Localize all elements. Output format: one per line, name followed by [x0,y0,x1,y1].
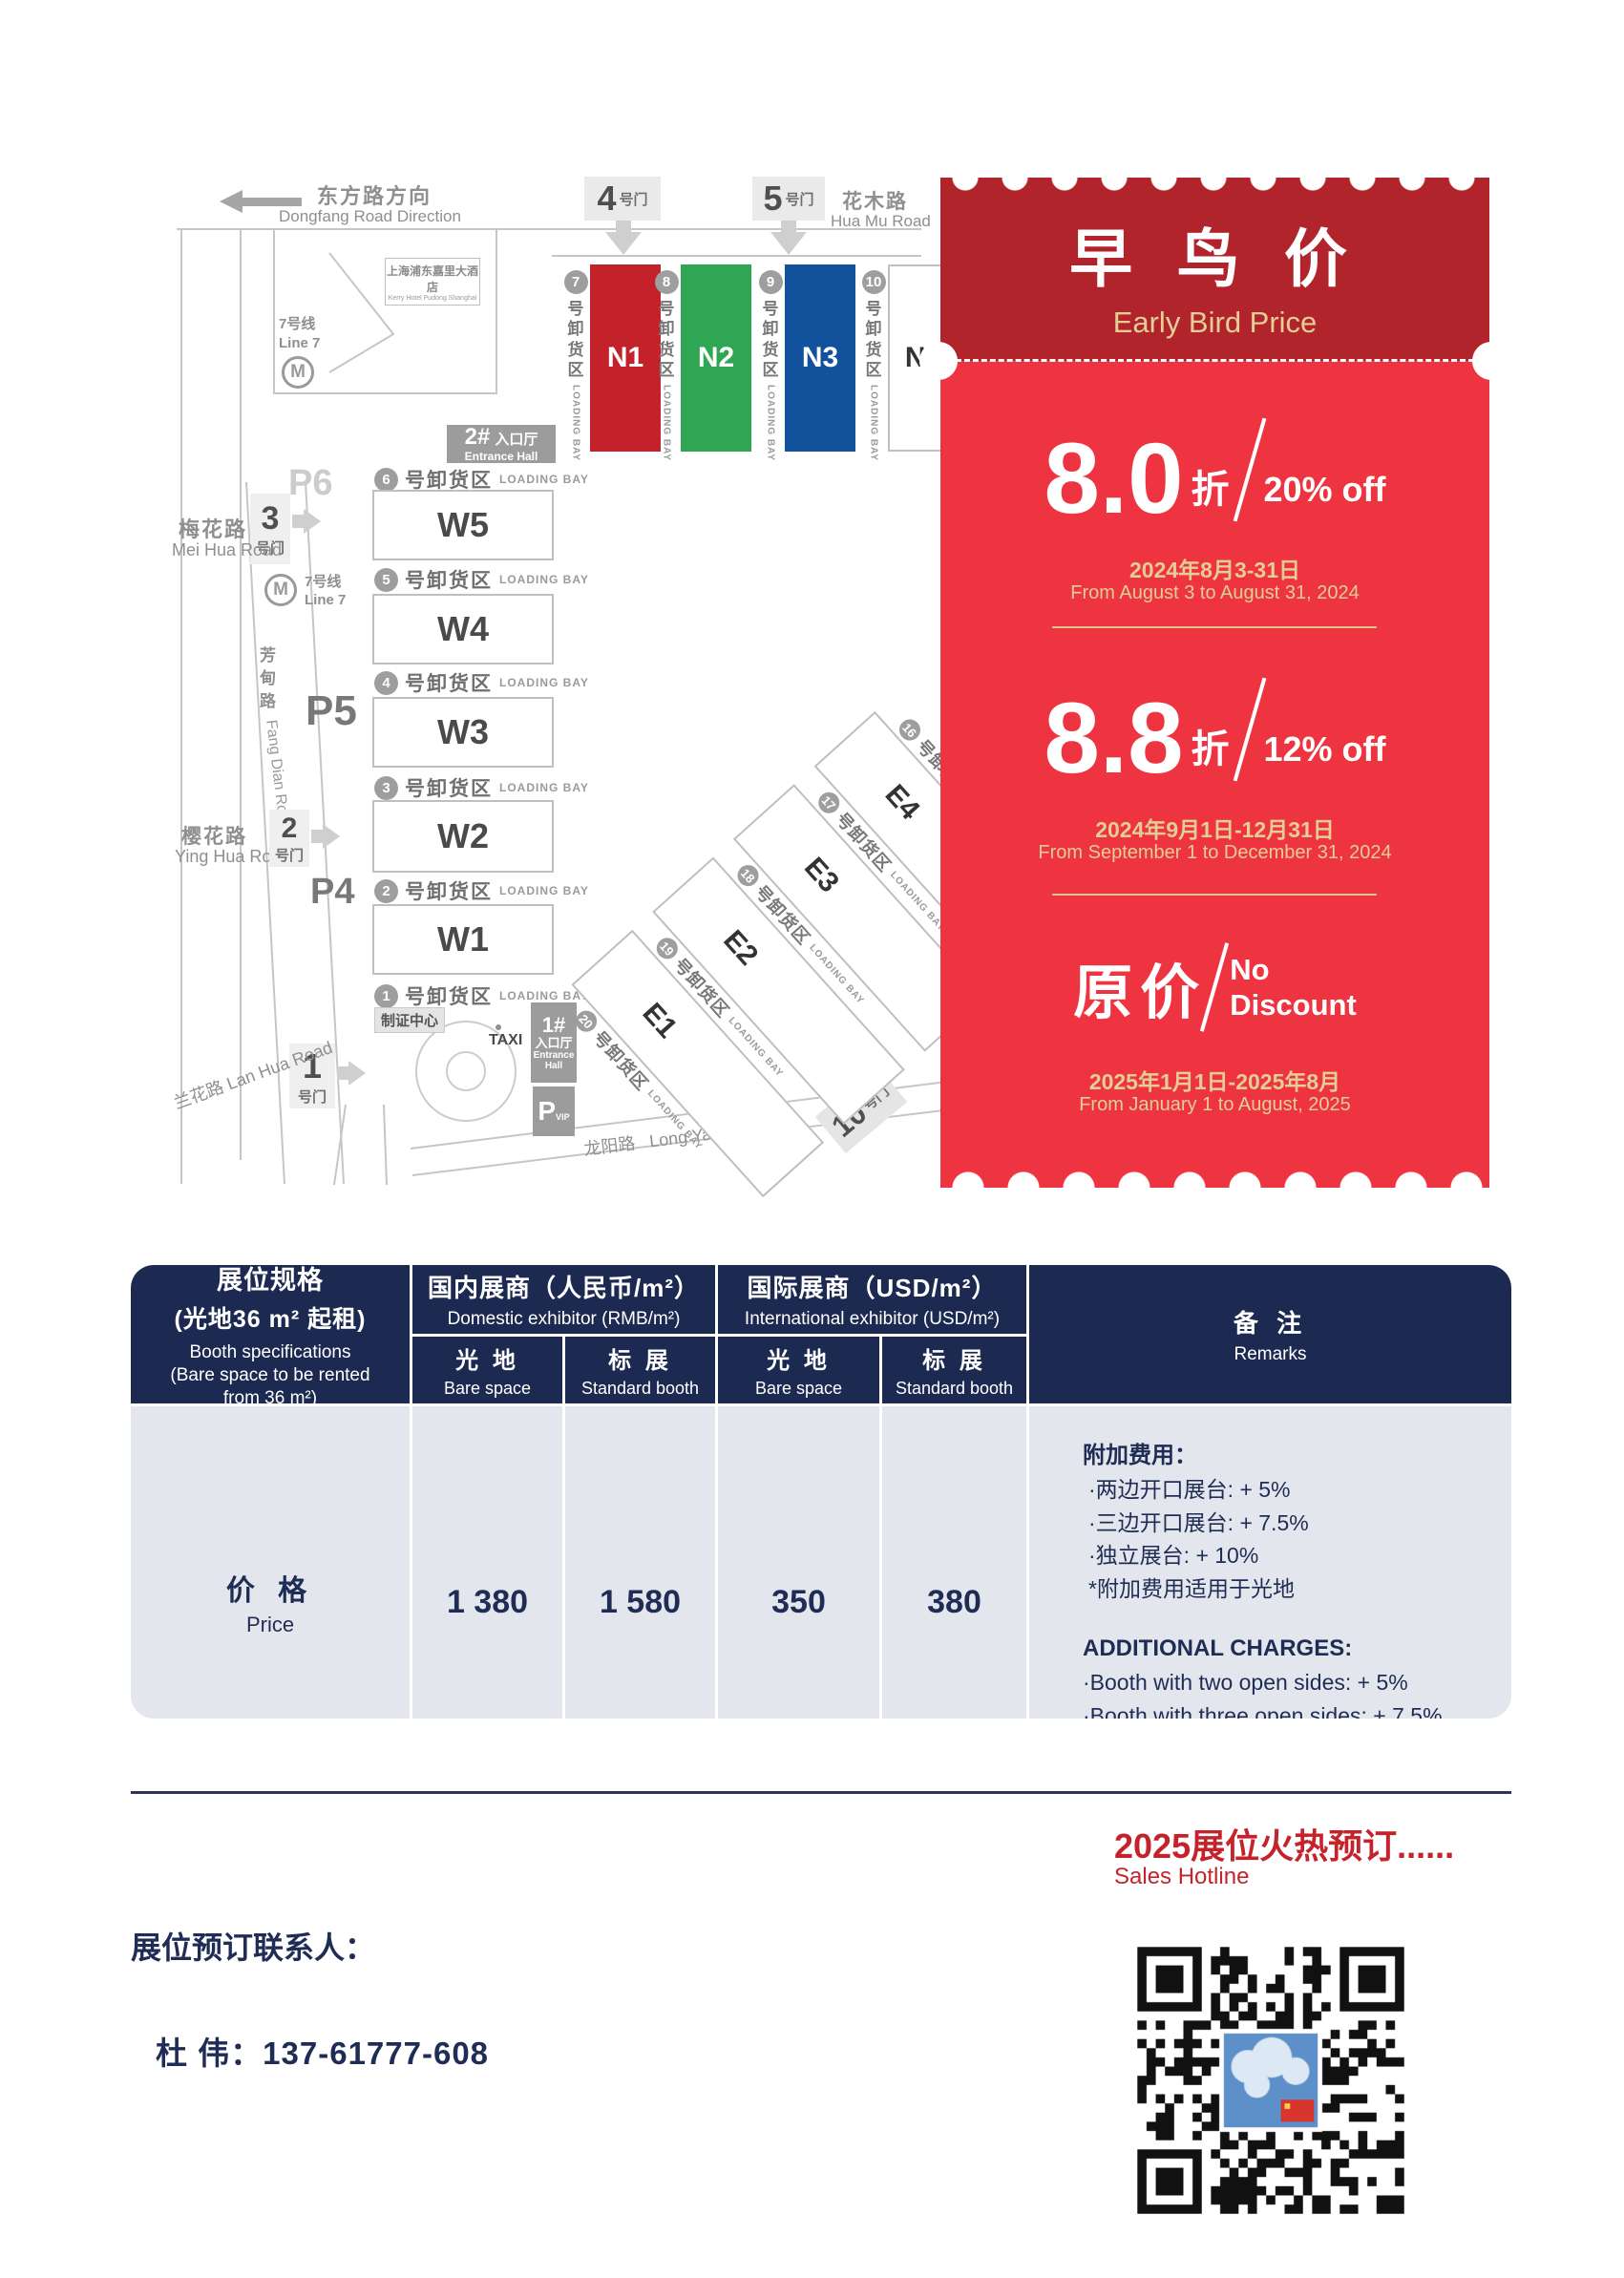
price-dom-bare-cell: 1 380 [412,1406,562,1719]
metro-line7-en-a: Line 7 [279,334,320,353]
n-bay-9-number: 9 [759,270,783,294]
w-bay-5-number: 5 [374,568,398,592]
tier2-percent: 12% off [1263,729,1385,770]
notes-en-title: ADDITIONAL CHARGES: [1083,1632,1352,1666]
metro-line7-zh-b: 7号线 [305,574,346,592]
huamu-road-en: Hua Mu Road [831,212,931,231]
badge-center-label: 制证中心 [374,1007,445,1033]
n-bay-7-number: 7 [564,270,588,294]
hall-w2-label: W2 [437,816,489,856]
n-bay-8-zh: 号卸货区 [659,299,675,380]
parking-p4: P4 [310,872,354,913]
gate-2-badge: 2 号门 [269,810,309,867]
hall-w1-label: W1 [437,919,489,960]
spec-zh-1: 展位规格 [217,1265,324,1297]
notes-zh-2: ·三边开口展台: + 7.5% [1083,1507,1309,1540]
contact-name: 杜 伟： [156,2035,263,2071]
contact-phone: 137-61777-608 [263,2035,489,2071]
tier1-date-zh: 2024年8月3-31日 [940,552,1489,584]
hotline-title: 2025展位火热预订...... [1114,1819,1454,1868]
gate-4-suffix: 号门 [620,189,648,209]
metro-line7-zh-a: 7号线 [279,315,320,334]
n-bay-10-zh: 号卸货区 [866,299,882,380]
tier1-slash-icon [1234,418,1267,522]
ticket-title-zh: 早 鸟 价 [940,208,1489,300]
entrance-2-zh: 入口厅 [495,432,538,447]
remarks-header-cell: 备 注 Remarks [1029,1265,1511,1403]
gate-4-number: 4 [597,179,616,219]
n-bay-10-en: LOADING BAY [869,385,879,461]
domestic-header-cell: 国内展商（人民币/m²） Domestic exhibitor (RMB/m²) [412,1265,715,1334]
gate-2-arrow-icon [311,824,340,849]
w-bay-6-en: LOADING BAY [499,473,589,486]
dom-bare-header-cell: 光 地 Bare space [412,1337,562,1403]
hall-n3: N3 [785,264,855,452]
gate-5-suffix: 号门 [786,189,814,209]
w-bay-4-en: LOADING BAY [499,676,589,689]
tier3-date-en: From January 1 to August, 2025 [940,1094,1489,1116]
dom-std-en: Standard booth [581,1379,699,1399]
w-bay-1-zh: 号卸货区 [405,981,493,1010]
price-label-zh: 价 格 [226,1567,314,1609]
international-en: International exhibitor (USD/m²) [745,1309,1000,1330]
spec-header-cell: 展位规格 (光地36 m² 起租) Booth specifications (… [131,1265,410,1403]
fangdian-road-zh: 芳甸路 [260,644,276,712]
gate-2-suffix: 号门 [275,845,304,865]
w-bay-2-zh: 号卸货区 [405,876,493,905]
vip-parking: P VIP [533,1086,575,1136]
hall-n2: N2 [681,264,751,452]
yinghua-road-zh: 樱花路 [181,821,247,850]
tier3-no-discount-2: Discount [1230,987,1357,1023]
tier3-date-zh: 2025年1月1日-2025年8月 [940,1064,1489,1096]
ticket-divider-2 [1052,894,1377,896]
gate-3-number: 3 [262,500,280,538]
w-bay-4-number: 4 [374,671,398,695]
price-label-en: Price [246,1613,294,1637]
hall-w3-label: W3 [437,712,489,752]
international-header-cell: 国际展商（USD/m²） International exhibitor (US… [718,1265,1026,1334]
huamu-road-zh: 花木路 [842,186,908,215]
ticket-title-en: Early Bird Price [940,306,1489,340]
meihua-road-en: Mei Hua Road [172,540,282,560]
intl-std-zh: 标 展 [922,1341,986,1375]
dom-std-header-cell: 标 展 Standard booth [565,1337,715,1403]
entrance-hall-2: 2# 入口厅 Entrance Hall [447,425,556,463]
vip-parking-p: P [538,1096,556,1127]
hall-n1-label: N1 [607,342,643,374]
metro-line7-label-a: 7号线 Line 7 [279,315,320,352]
gate-5-arrow-icon [770,221,807,255]
intl-std-header-cell: 标 展 Standard booth [882,1337,1026,1403]
qr-code [1119,1929,1423,2232]
ticket-notch-right [1472,342,1510,380]
longyang-road-zh: 龙阳路 [582,1133,636,1158]
w-loading-bay-3: 3 号卸货区 LOADING BAY [374,773,589,802]
n-bay-9-zh: 号卸货区 [763,299,779,380]
domestic-zh: 国内展商（人民币/m²） [428,1269,700,1304]
notes-zh-4: *附加费用适用于光地 [1083,1572,1295,1606]
gate-4-arrow-icon [605,221,642,255]
n-bay-8-en: LOADING BAY [662,385,672,461]
w-bay-4-zh: 号卸货区 [405,668,493,697]
price-intl-std-cell: 380 [882,1406,1026,1719]
hall-w5: W5 [372,490,554,560]
dom-std-zh: 标 展 [608,1341,672,1375]
hall-e3-label: E3 [797,852,845,899]
gate-3-arrow-icon [292,509,321,534]
hall-n2-label: N2 [698,342,734,374]
ticket-divider-1 [1052,626,1377,628]
n-bay-10-number: 10 [862,270,886,294]
metro-line7-label-b: 7号线 Line 7 [305,574,346,610]
w-bay-5-zh: 号卸货区 [405,565,493,594]
taxi-label: TAXI [489,1032,522,1049]
tier3-no-discount-1: No [1230,952,1357,987]
vip-parking-sub: VIP [556,1112,570,1122]
additional-charges-cell: 附加费用： ·两边开口展台: + 5% ·三边开口展台: + 7.5% ·独立展… [1029,1406,1511,1719]
w-bay-5-en: LOADING BAY [499,573,589,586]
notes-en-1: ·Booth with two open sides: + 5% [1083,1666,1408,1699]
price-label-cell: 价 格 Price [131,1406,410,1719]
gate-1-suffix: 号门 [298,1086,327,1107]
dom-bare-zh: 光 地 [455,1341,519,1375]
notes-zh-3: ·独立展台: + 10% [1083,1539,1258,1572]
hall-w3: W3 [372,697,554,768]
ticket-notch-left [919,342,958,380]
intl-bare-zh: 光 地 [767,1341,831,1375]
tier2-unit: 折 [1191,718,1229,773]
domestic-en: Domestic exhibitor (RMB/m²) [448,1309,681,1330]
w-bay-6-number: 6 [374,468,398,492]
gate-5-number: 5 [763,179,782,219]
kerry-hotel-label: 上海浦东嘉里大酒店 Kerry Hotel Pudong Shanghai [385,258,480,306]
spec-en-2: (Bare space to be rented [170,1365,369,1386]
kerry-hotel-en: Kerry Hotel Pudong Shanghai [389,295,477,302]
hall-w5-label: W5 [437,505,489,545]
w-loading-bay-4: 4 号卸货区 LOADING BAY [374,668,589,697]
tier1-date-en: From August 3 to August 31, 2024 [940,582,1489,604]
notes-zh-title: 附加费用： [1083,1439,1197,1473]
hall-e4-label: E4 [878,779,926,827]
spec-zh-2: (光地36 m² 起租) [175,1300,367,1335]
entrance-1-en1: Entrance [534,1050,575,1061]
tier2-date-zh: 2024年9月1日-12月31日 [940,812,1489,844]
w-bay-1-number: 1 [374,984,398,1008]
hall-w4: W4 [372,594,554,664]
w-bay-3-zh: 号卸货区 [405,773,493,802]
tier2-row: 8.8 折 12% off [940,676,1489,779]
gate-1-arrow-icon [337,1061,366,1086]
venue-map: 东方路方向 Dongfang Road Direction 4 号门 5 号门 … [115,167,957,1213]
gate-2-number: 2 [282,812,298,845]
early-bird-ticket: 早 鸟 价 Early Bird Price 8.0 折 20% off 202… [940,178,1489,1188]
n-loading-bay-10: 10 号卸货区 LOADING BAY [861,270,886,461]
tier3-original-price: 原价 [1073,944,1207,1030]
w-bay-3-number: 3 [374,776,398,800]
price-intl-bare-cell: 350 [718,1406,879,1719]
entrance-2-number: 2# [465,426,491,449]
tier1-row: 8.0 折 20% off [940,416,1489,519]
parking-p5: P5 [306,687,357,735]
contact-label: 展位预订联系人： [131,1924,375,1968]
hotline-subtitle: Sales Hotline [1114,1864,1249,1890]
gate-4-badge: 4 号门 [584,177,661,221]
metro-line7-en-b: Line 7 [305,592,346,610]
gate-5-badge: 5 号门 [752,177,825,221]
n-bay-8-number: 8 [655,270,679,294]
contact-line: 杜 伟：137-61777-608 [156,2028,489,2074]
remarks-zh: 备 注 [1234,1304,1307,1339]
entrance-2-en: Entrance Hall [465,451,538,462]
international-zh: 国际展商（USD/m²） [748,1269,998,1304]
hall-n3-label: N3 [802,342,838,374]
tier2-discount: 8.8 [1044,699,1184,779]
dongfang-road-en: Dongfang Road Direction [279,207,461,226]
hall-n1: N1 [590,264,661,452]
entrance-1-en2: Hall [545,1061,562,1071]
notes-zh-1: ·两边开口展台: + 5% [1083,1473,1291,1507]
dongfang-road-zh: 东方路方向 [317,179,432,210]
metro-line7-icon-b: M [264,574,297,606]
pricing-table: 展位规格 (光地36 m² 起租) Booth specifications (… [131,1265,1511,1719]
price-dom-std-cell: 1 580 [565,1406,715,1719]
entrance-1-zh: 入口厅 [535,1037,572,1050]
tier2-slash-icon [1234,678,1267,782]
ticket-dashed-divider [956,359,1474,362]
hall-e2-label: E2 [716,924,764,972]
intl-bare-header-cell: 光 地 Bare space [718,1337,879,1403]
spec-en-1: Booth specifications [190,1342,351,1363]
intl-bare-en: Bare space [755,1379,842,1399]
w-bay-3-en: LOADING BAY [499,781,589,794]
footer-divider [131,1791,1511,1794]
parking-p6: P6 [288,463,332,504]
n-bay-7-zh: 号卸货区 [568,299,584,380]
hall-w2: W2 [372,800,554,873]
w-loading-bay-5: 5 号卸货区 LOADING BAY [374,565,589,594]
tier3-row: 原价 No Discount [940,941,1489,1033]
tier1-unit: 折 [1191,458,1229,514]
dom-bare-en: Bare space [444,1379,531,1399]
meihua-road-zh: 梅花路 [179,513,247,543]
flyer-page: 东方路方向 Dongfang Road Direction 4 号门 5 号门 … [0,0,1624,2278]
kerry-hotel-zh: 上海浦东嘉里大酒店 [386,263,479,295]
n-loading-bay-8: 8 号卸货区 LOADING BAY [654,270,679,461]
tier1-discount: 8.0 [1044,439,1184,519]
intl-std-en: Standard booth [896,1379,1013,1399]
n-bay-9-en: LOADING BAY [766,385,776,461]
w-bay-2-number: 2 [374,879,398,903]
entrance-1-number: 1# [542,1014,565,1037]
hall-w4-label: W4 [437,609,489,649]
metro-line7-icon-a: M [282,356,314,389]
n-loading-bay-9: 9 号卸货区 LOADING BAY [758,270,783,461]
n-bay-7-en: LOADING BAY [571,385,581,461]
notes-en-2: ·Booth with three open sides: + 7.5% [1083,1699,1443,1719]
remarks-en: Remarks [1234,1344,1306,1365]
tier1-percent: 20% off [1263,470,1385,510]
hall-e1-label: E1 [636,997,684,1044]
tier2-date-en: From September 1 to December 31, 2024 [940,842,1489,864]
n-loading-bay-7: 7 号卸货区 LOADING BAY [563,270,588,461]
